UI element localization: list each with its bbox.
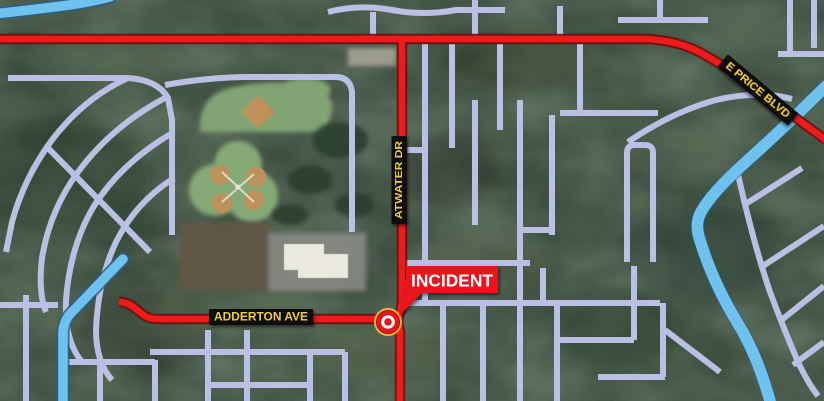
label-atwater-dr: ATWATER DR bbox=[392, 136, 407, 224]
news-map-graphic: ATWATER DR ADDERTON AVE E PRICE BLVD INC… bbox=[0, 0, 824, 401]
road-label-text: ADDERTON AVE bbox=[214, 312, 308, 324]
map-canvas: ATWATER DR ADDERTON AVE E PRICE BLVD INC… bbox=[0, 0, 824, 401]
marker-center-dot bbox=[384, 318, 392, 326]
label-adderton-ave: ADDERTON AVE bbox=[209, 309, 313, 325]
incident-marker bbox=[375, 309, 401, 335]
incident-callout-text: INCIDENT bbox=[411, 271, 493, 291]
satellite-grain bbox=[0, 0, 824, 401]
road-label-text: ATWATER DR bbox=[393, 141, 405, 219]
